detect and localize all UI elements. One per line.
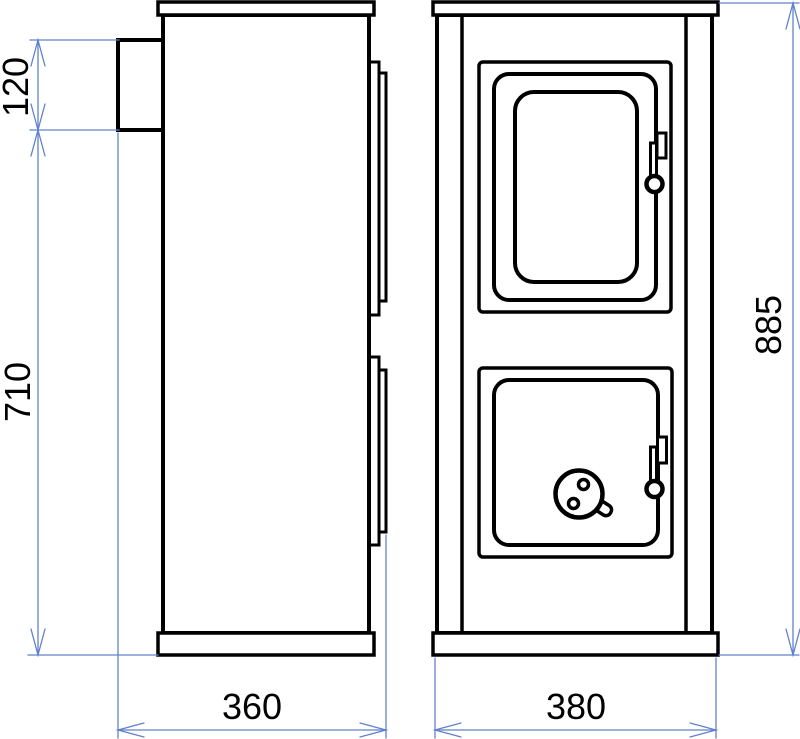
air-control-hole-1 bbox=[579, 480, 589, 490]
dimension-885: 885 bbox=[719, 3, 800, 655]
side-view bbox=[118, 2, 386, 655]
fire-door-handle-knob bbox=[647, 176, 663, 192]
dimension-label-710: 710 bbox=[0, 362, 38, 422]
dimension-label-380: 380 bbox=[546, 686, 606, 727]
fire-door-latch-catch bbox=[657, 133, 666, 158]
ash-door-handle-lever bbox=[651, 447, 657, 484]
ash-door-latch-catch bbox=[658, 437, 667, 463]
flue-collar bbox=[118, 40, 163, 130]
front-view bbox=[433, 2, 718, 655]
ash-door-panel bbox=[494, 380, 658, 545]
front-top-plate bbox=[433, 2, 718, 15]
stove-technical-drawing: 120 710 885 360 380 bbox=[0, 0, 800, 739]
fire-door bbox=[479, 62, 671, 312]
ash-door bbox=[479, 368, 672, 557]
side-body bbox=[163, 15, 369, 633]
side-top-plate bbox=[158, 2, 374, 15]
dimension-380: 380 bbox=[435, 658, 716, 738]
front-base-plate bbox=[433, 633, 718, 655]
upper-door-profile-panel bbox=[379, 73, 386, 301]
dimension-label-120: 120 bbox=[0, 57, 36, 117]
air-control-hole-2 bbox=[569, 499, 579, 509]
dimension-label-360: 360 bbox=[222, 686, 282, 727]
dimension-label-885: 885 bbox=[748, 295, 789, 355]
fire-door-glass-window bbox=[515, 92, 637, 282]
dimension-710: 710 bbox=[0, 130, 158, 655]
lower-door-profile-panel bbox=[379, 370, 386, 532]
dimension-120: 120 bbox=[0, 40, 119, 130]
ash-door-handle-knob bbox=[647, 481, 663, 497]
side-base-plate bbox=[158, 633, 374, 655]
drawing-page: 120 710 885 360 380 bbox=[0, 0, 800, 739]
air-control-dial bbox=[556, 471, 603, 518]
